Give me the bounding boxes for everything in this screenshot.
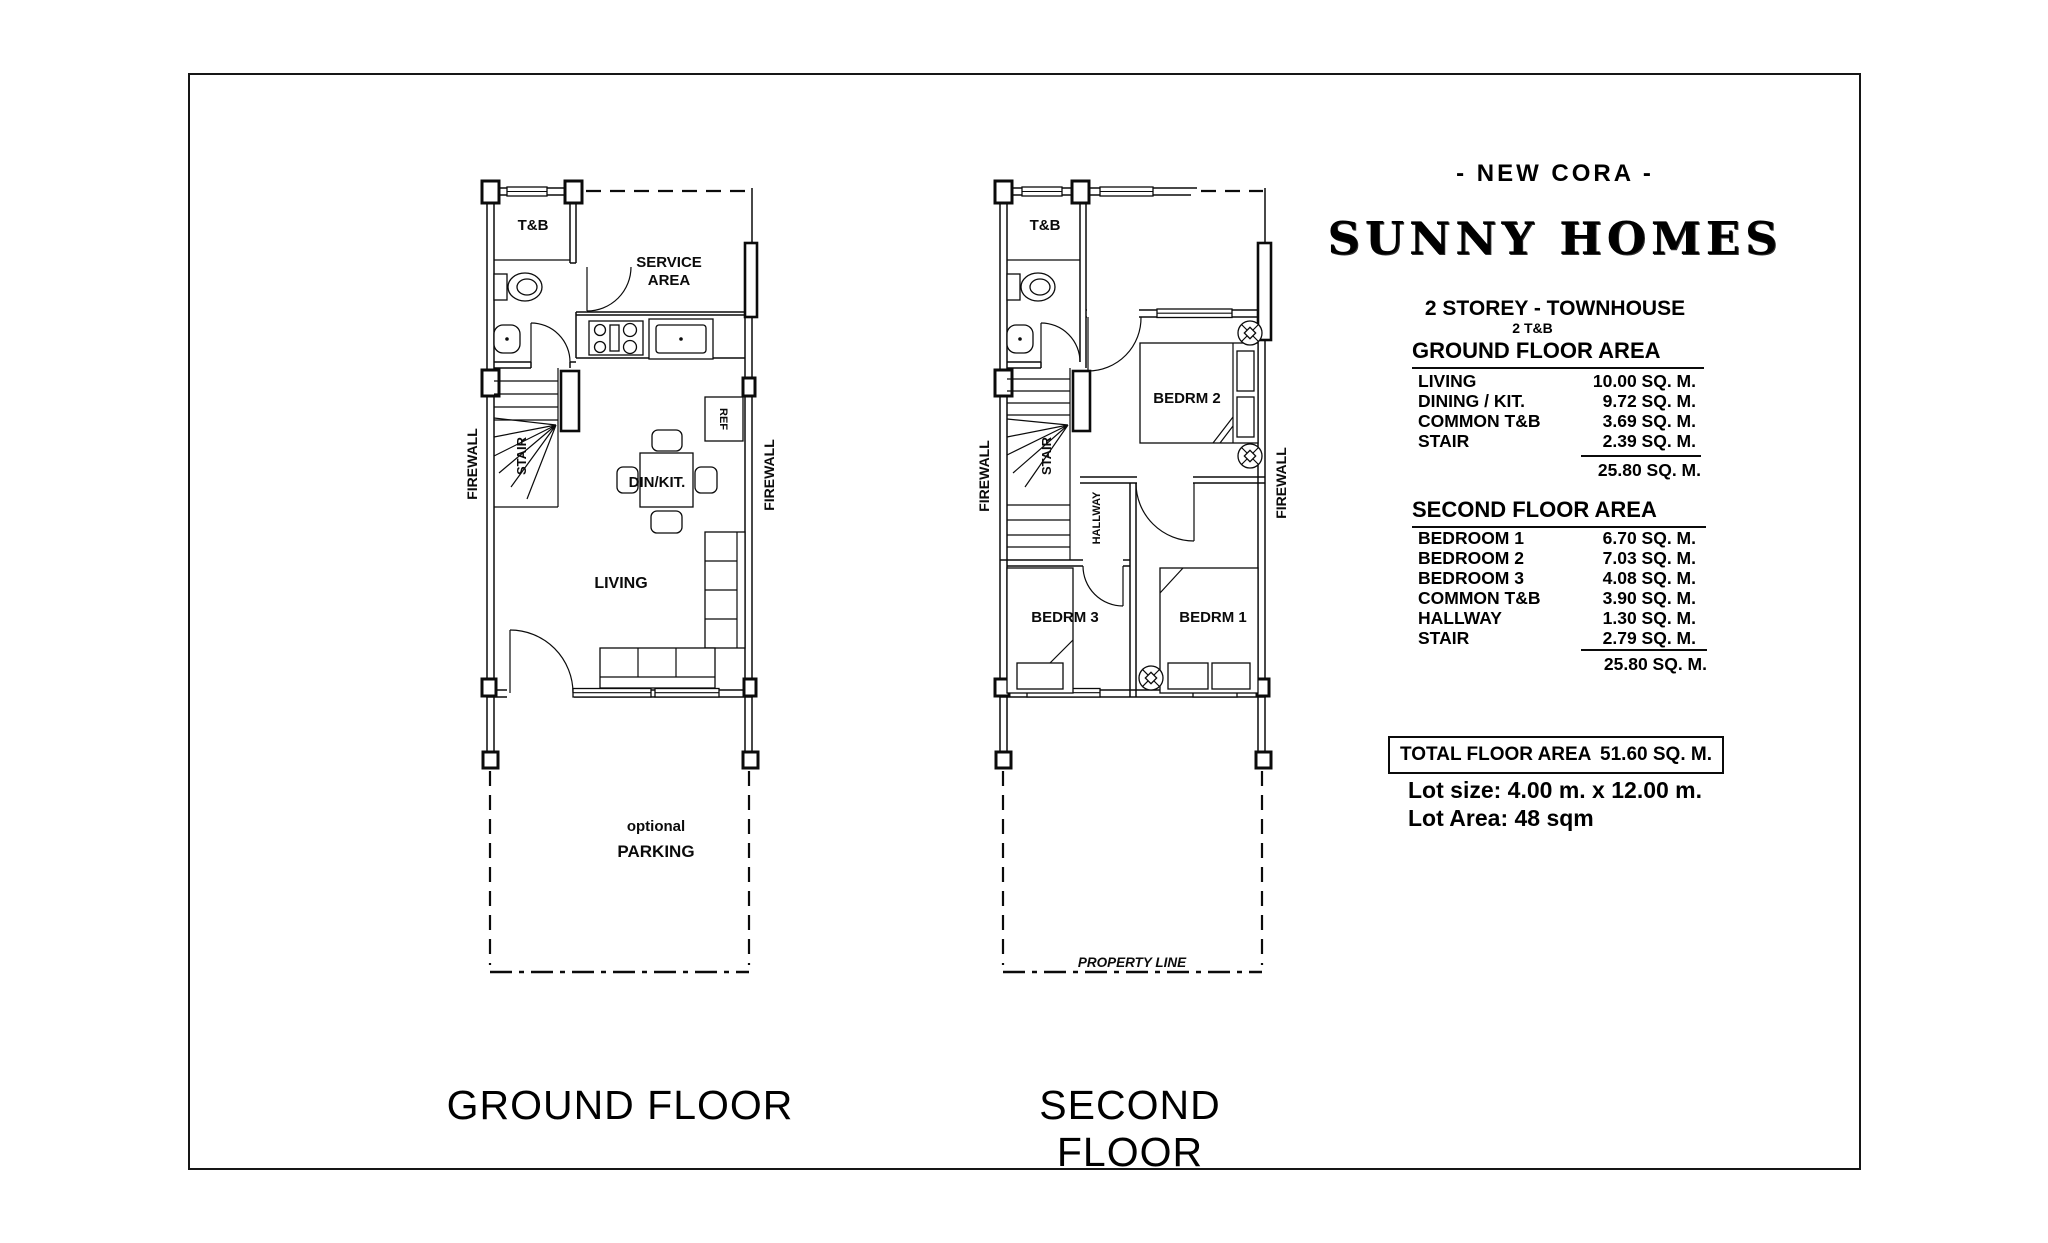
gf-sofa-bottom <box>600 648 715 688</box>
gf-window-bottom-2 <box>655 689 719 698</box>
sf-sum-rule <box>1581 649 1707 651</box>
column-symbol-icon <box>1238 321 1262 345</box>
row-label: LIVING <box>1418 371 1476 391</box>
gf-dinkit-label: DIN/KIT. <box>629 474 686 491</box>
row-value: 7.03 SQ. M. <box>1603 548 1696 568</box>
sf-tb-label: T&B <box>1030 217 1061 234</box>
sf-bedrm2-door <box>1088 317 1141 371</box>
sf-hallway-label: HALLWAY <box>1091 491 1103 544</box>
gf-entry-door <box>510 630 573 693</box>
sf-property-bound <box>996 697 1271 972</box>
table-row: STAIR 2.79 SQ. M. <box>1418 628 1696 648</box>
gf-parking-label-1: optional <box>627 818 685 835</box>
row-value: 3.69 SQ. M. <box>1603 411 1696 431</box>
gf-tb-door <box>531 323 570 362</box>
gf-window-top <box>507 187 547 196</box>
row-value: 1.30 SQ. M. <box>1603 608 1696 628</box>
row-label: COMMON T&B <box>1418 411 1540 431</box>
row-label: BEDROOM 1 <box>1418 528 1524 548</box>
gf-stove-icon <box>589 321 643 355</box>
gf-toilet-icon <box>494 273 542 301</box>
column-symbol-icon <box>1139 666 1163 690</box>
sf-toilet-icon <box>1007 273 1055 301</box>
sf-bed-1 <box>1160 568 1258 693</box>
sf-bed-3 <box>1007 568 1073 693</box>
sf-window-top-1 <box>1022 187 1062 196</box>
row-value: 2.39 SQ. M. <box>1603 431 1696 451</box>
gf-refrigerator: REF <box>705 397 743 441</box>
sf-bedrm3-door <box>1083 566 1123 606</box>
second-floor-title: SECOND FLOOR <box>960 1082 1300 1176</box>
bath-count: 2 T&B <box>1360 320 1705 336</box>
sf-firewall-right-label: FIREWALL <box>1273 447 1289 519</box>
gf-sum-rule <box>1581 455 1701 457</box>
ground-floor-area-table: LIVING 10.00 SQ. M. DINING / KIT. 9.72 S… <box>1418 371 1696 451</box>
row-value: 10.00 SQ. M. <box>1593 371 1696 391</box>
table-row: COMMON T&B 3.90 SQ. M. <box>1418 588 1696 608</box>
row-value: 6.70 SQ. M. <box>1603 528 1696 548</box>
row-value: 9.72 SQ. M. <box>1603 391 1696 411</box>
table-row: HALLWAY 1.30 SQ. M. <box>1418 608 1696 628</box>
row-value: 3.90 SQ. M. <box>1603 588 1696 608</box>
gf-service-label-1: SERVICE <box>636 254 702 271</box>
sf-bedrm2-label: BEDRM 2 <box>1153 390 1221 407</box>
gf-firewall-left-label: FIREWALL <box>464 428 480 500</box>
brand-name: SUNNY HOMES <box>1310 212 1800 265</box>
floor-plan-sheet: REF <box>0 0 2048 1243</box>
model-name: - NEW CORA - <box>1320 160 1790 188</box>
row-label: STAIR <box>1418 431 1469 451</box>
gf-firewall-right-label: FIREWALL <box>761 439 777 511</box>
column-symbol-icon <box>1238 444 1262 468</box>
ground-floor-total: 25.80 SQ. M. <box>1418 460 1701 481</box>
total-floor-area-value: 51.60 SQ. M. <box>1600 744 1712 766</box>
gf-parking-bound <box>483 697 758 972</box>
row-value: 4.08 SQ. M. <box>1603 568 1696 588</box>
second-floor-area-table: BEDROOM 1 6.70 SQ. M. BEDROOM 2 7.03 SQ.… <box>1418 528 1696 648</box>
ground-floor-plan: REF <box>455 175 785 990</box>
sf-bedrm1-label: BEDRM 1 <box>1179 609 1247 626</box>
gf-lavatory-icon <box>494 325 520 353</box>
row-label: BEDROOM 3 <box>1418 568 1524 588</box>
sf-tb-door <box>1041 323 1080 362</box>
sf-lavatory-icon <box>1007 325 1033 353</box>
table-row: LIVING 10.00 SQ. M. <box>1418 371 1696 391</box>
sf-window-top-2 <box>1100 187 1153 196</box>
house-type: 2 STOREY - TOWNHOUSE <box>1320 297 1790 321</box>
second-floor-plan: T&B BEDRM 2 BEDRM 3 BEDRM 1 HALLWAY STAI… <box>965 175 1295 990</box>
total-floor-area-label: TOTAL FLOOR AREA <box>1400 744 1591 766</box>
gf-tb-label: T&B <box>518 217 549 234</box>
gf-ref-label: REF <box>717 408 729 430</box>
gf-window-bottom-1 <box>573 689 651 698</box>
gf-living-label: LIVING <box>594 575 647 592</box>
table-row: STAIR 2.39 SQ. M. <box>1418 431 1696 451</box>
row-label: BEDROOM 2 <box>1418 548 1524 568</box>
ground-floor-title: GROUND FLOOR <box>445 1082 795 1129</box>
second-floor-total: 25.80 SQ. M. <box>1418 654 1707 675</box>
sf-window-mid <box>1157 309 1232 318</box>
row-label: HALLWAY <box>1418 608 1502 628</box>
sf-stair-label: STAIR <box>1039 436 1054 475</box>
sf-firewall-left-label: FIREWALL <box>976 440 992 512</box>
lot-area: Lot Area: 48 sqm <box>1408 805 1594 832</box>
sf-bedrm1-door <box>1136 483 1194 541</box>
sf-bedrm3-label: BEDRM 3 <box>1031 609 1099 626</box>
row-label: DINING / KIT. <box>1418 391 1525 411</box>
gf-sink-icon <box>649 319 713 359</box>
sf-property-line-label: PROPERTY LINE <box>1078 955 1187 970</box>
table-row: BEDROOM 1 6.70 SQ. M. <box>1418 528 1696 548</box>
gf-sofa-right <box>705 532 745 648</box>
row-label: STAIR <box>1418 628 1469 648</box>
table-row: BEDROOM 3 4.08 SQ. M. <box>1418 568 1696 588</box>
row-label: COMMON T&B <box>1418 588 1540 608</box>
row-value: 2.79 SQ. M. <box>1603 628 1696 648</box>
ground-floor-area-title: GROUND FLOOR AREA <box>1412 338 1704 369</box>
gf-stair-label: STAIR <box>514 436 529 475</box>
table-row: BEDROOM 2 7.03 SQ. M. <box>1418 548 1696 568</box>
gf-service-label-2: AREA <box>648 272 691 289</box>
total-floor-area-box: TOTAL FLOOR AREA 51.60 SQ. M. <box>1388 736 1724 774</box>
table-row: COMMON T&B 3.69 SQ. M. <box>1418 411 1696 431</box>
lot-size: Lot size: 4.00 m. x 12.00 m. <box>1408 777 1702 804</box>
gf-parking-label-2: PARKING <box>617 842 694 861</box>
gf-service-door <box>587 267 631 311</box>
table-row: DINING / KIT. 9.72 SQ. M. <box>1418 391 1696 411</box>
second-floor-area-title: SECOND FLOOR AREA <box>1412 497 1706 528</box>
